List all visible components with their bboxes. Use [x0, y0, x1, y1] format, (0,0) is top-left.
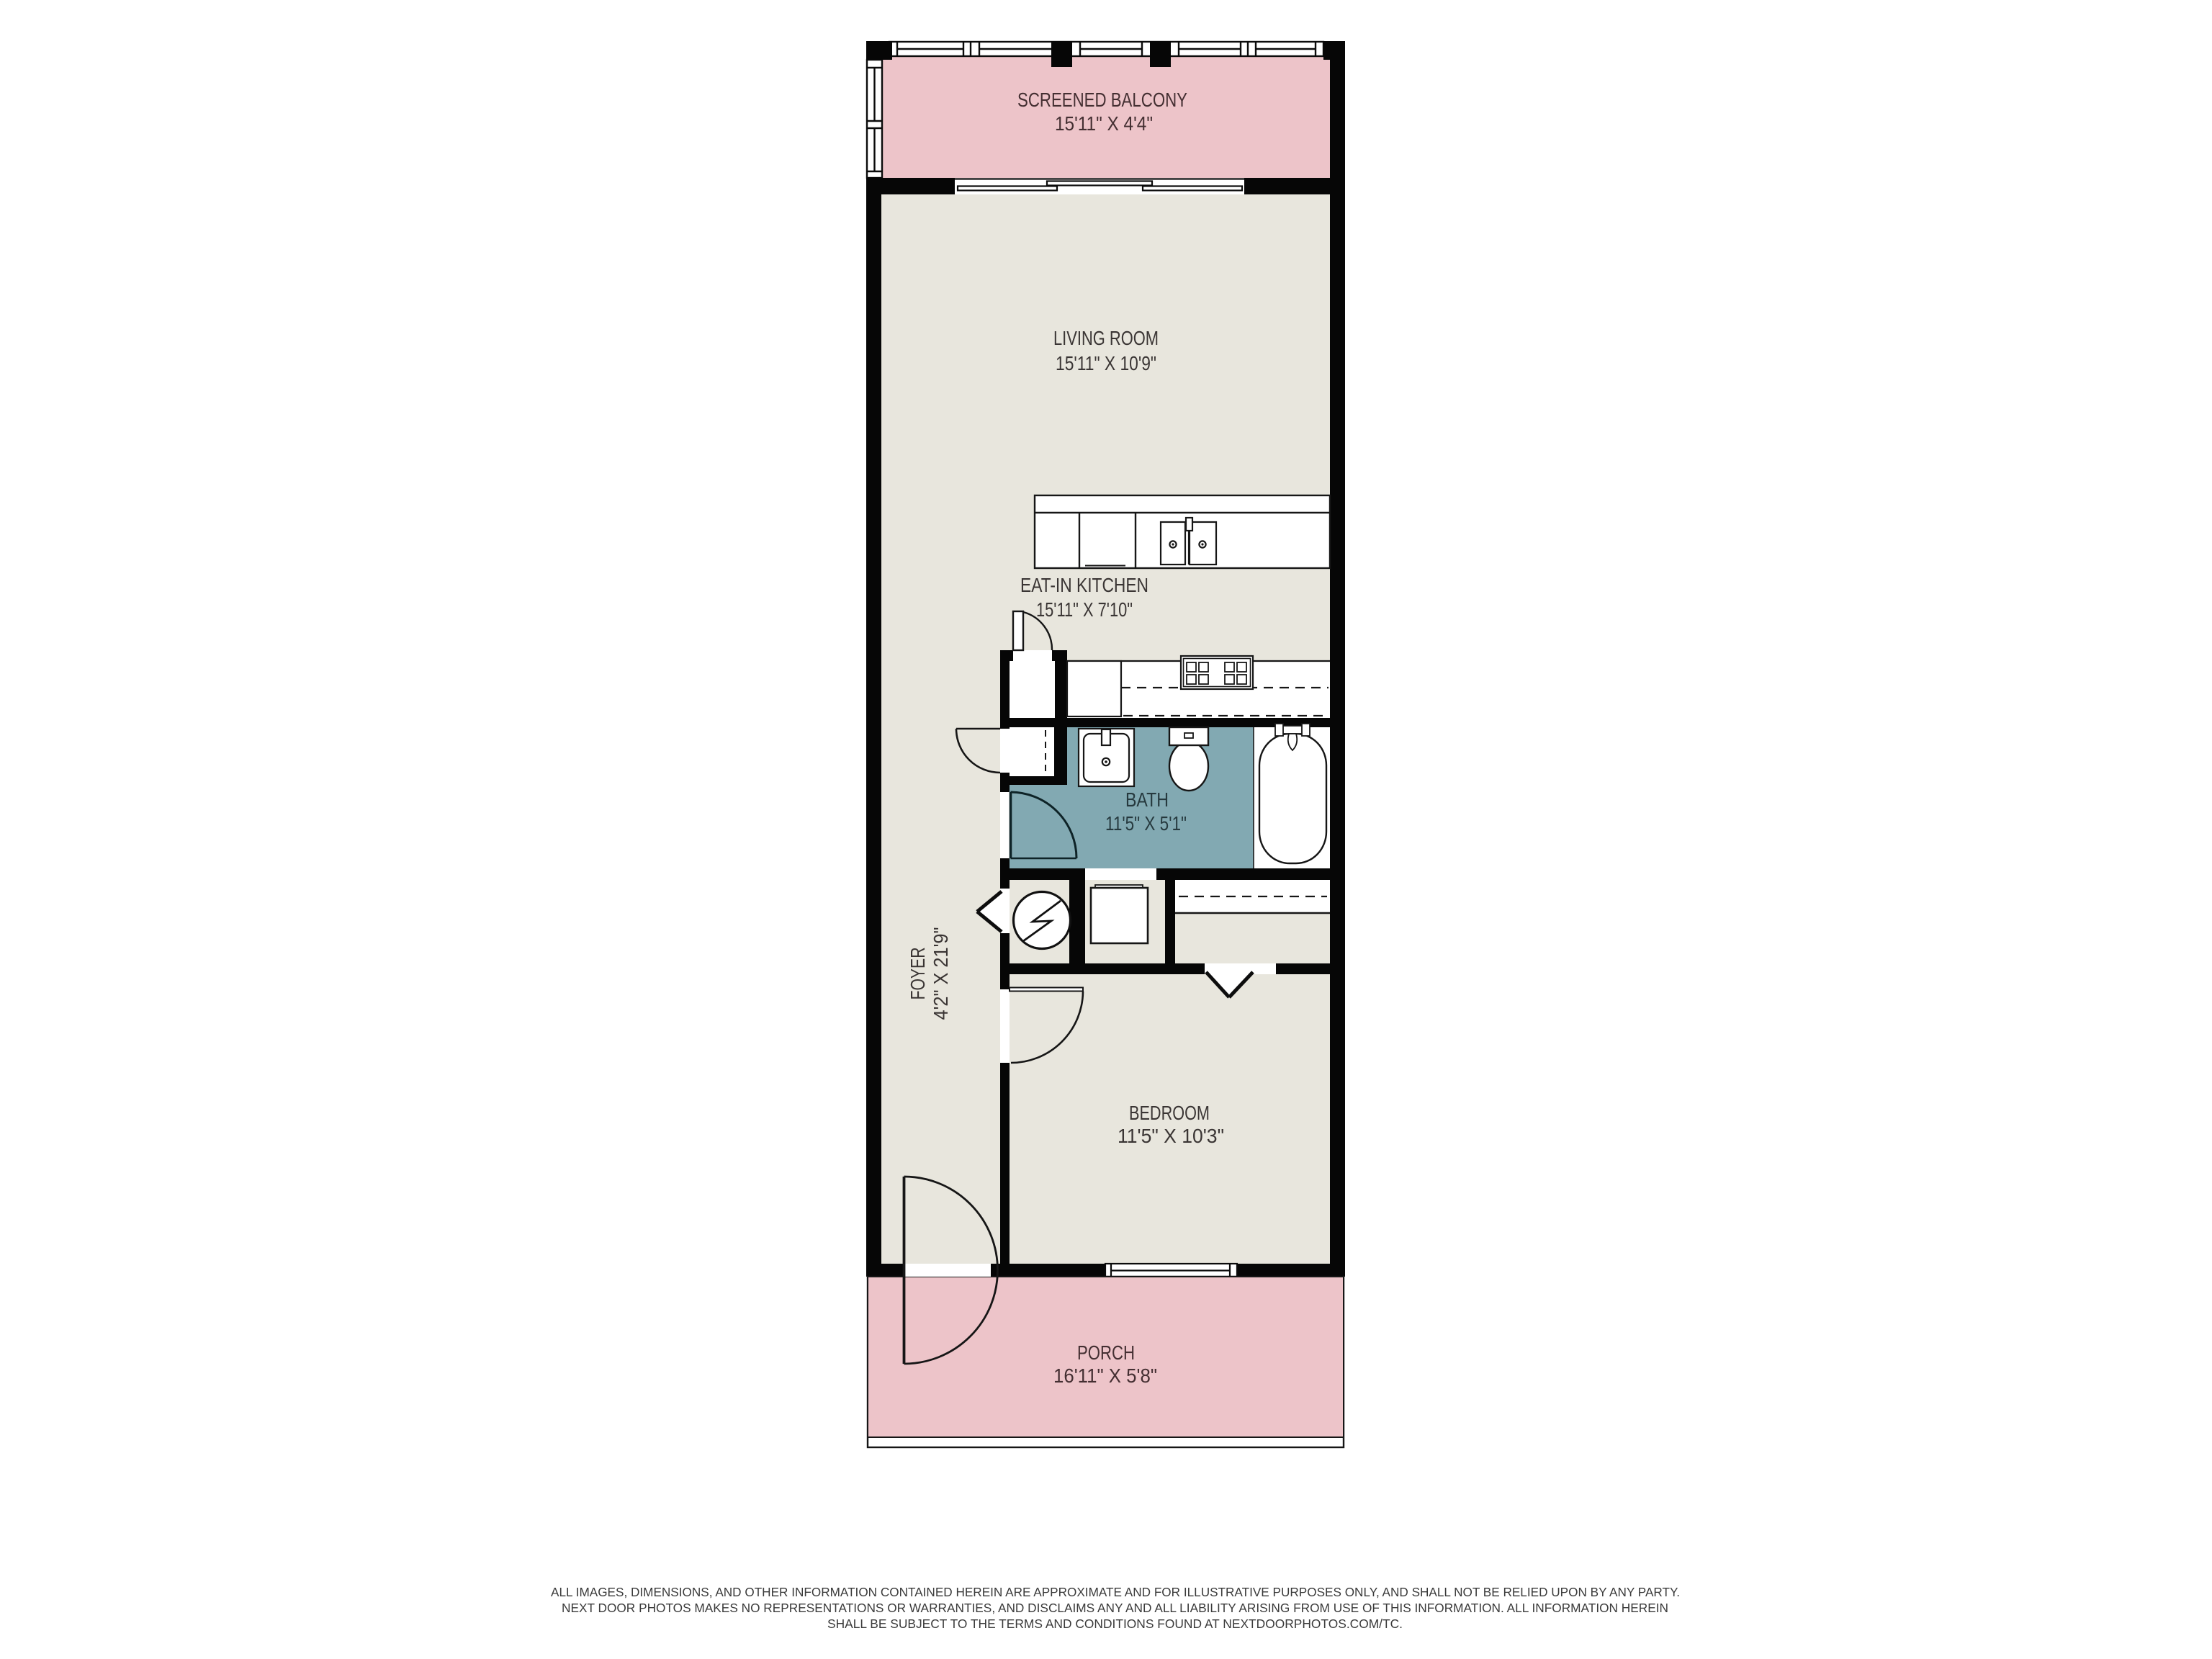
svg-text:15'11" X 10'9": 15'11" X 10'9" — [1056, 352, 1156, 374]
svg-text:15'11" X 4'4": 15'11" X 4'4" — [1055, 112, 1153, 135]
svg-text:11'5" X 10'3": 11'5" X 10'3" — [1118, 1125, 1224, 1147]
svg-text:FOYER: FOYER — [907, 948, 929, 1000]
svg-text:SCREENED BALCONY: SCREENED BALCONY — [1017, 89, 1187, 111]
svg-text:16'11" X 5'8": 16'11" X 5'8" — [1053, 1364, 1157, 1387]
svg-text:NEXT DOOR PHOTOS MAKES NO REPR: NEXT DOOR PHOTOS MAKES NO REPRESENTATION… — [562, 1601, 1668, 1615]
svg-text:LIVING ROOM: LIVING ROOM — [1053, 327, 1159, 349]
svg-text:11'5" X 5'1": 11'5" X 5'1" — [1105, 812, 1187, 835]
svg-text:SHALL BE SUBJECT TO THE TERMS: SHALL BE SUBJECT TO THE TERMS AND CONDIT… — [827, 1617, 1403, 1631]
svg-text:EAT-IN KITCHEN: EAT-IN KITCHEN — [1020, 574, 1148, 596]
svg-text:BATH: BATH — [1125, 788, 1169, 811]
svg-text:ALL IMAGES, DIMENSIONS, AND OT: ALL IMAGES, DIMENSIONS, AND OTHER INFORM… — [551, 1585, 1680, 1599]
svg-text:15'11" X 7'10": 15'11" X 7'10" — [1036, 598, 1133, 621]
svg-text:4'2" X 21'9": 4'2" X 21'9" — [930, 927, 952, 1020]
svg-text:BEDROOM: BEDROOM — [1129, 1102, 1210, 1124]
svg-text:PORCH: PORCH — [1077, 1341, 1135, 1364]
